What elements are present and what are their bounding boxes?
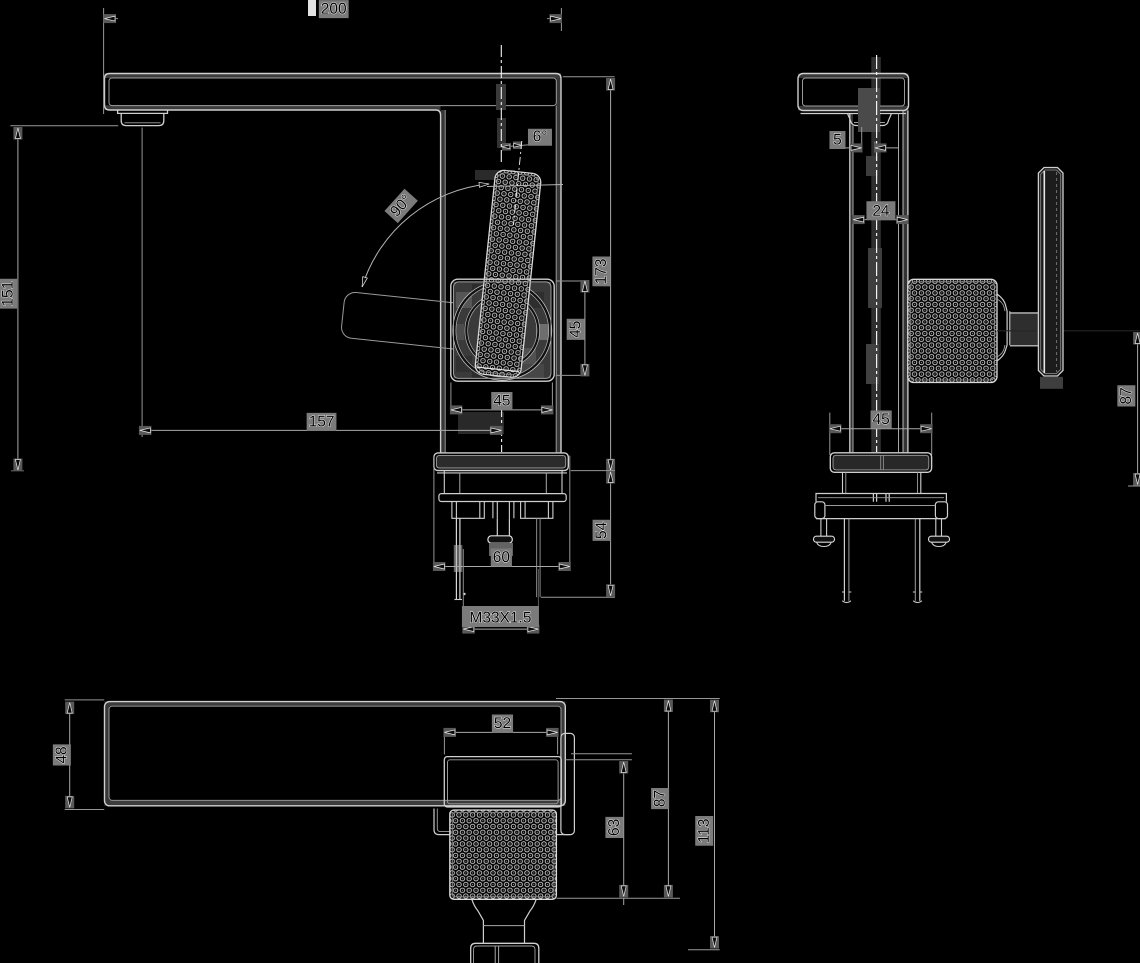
- svg-text:45: 45: [567, 321, 584, 338]
- svg-text:200: 200: [321, 1, 347, 18]
- svg-text:45: 45: [493, 392, 510, 409]
- svg-text:173: 173: [593, 258, 610, 284]
- svg-text:6°: 6°: [533, 128, 548, 145]
- svg-text:24: 24: [872, 203, 890, 220]
- svg-text:48: 48: [53, 746, 70, 763]
- svg-text:5: 5: [833, 132, 842, 149]
- svg-text:60: 60: [493, 549, 511, 566]
- svg-text:52: 52: [494, 715, 511, 732]
- svg-text:M33X1.5: M33X1.5: [469, 609, 531, 626]
- svg-text:157: 157: [309, 413, 335, 430]
- svg-text:54: 54: [593, 521, 610, 539]
- svg-text:45: 45: [873, 411, 890, 428]
- svg-text:87: 87: [652, 790, 669, 807]
- svg-text:151: 151: [0, 281, 17, 307]
- svg-text:87: 87: [1118, 387, 1135, 404]
- svg-text:113: 113: [696, 819, 713, 844]
- svg-text:63: 63: [606, 819, 623, 836]
